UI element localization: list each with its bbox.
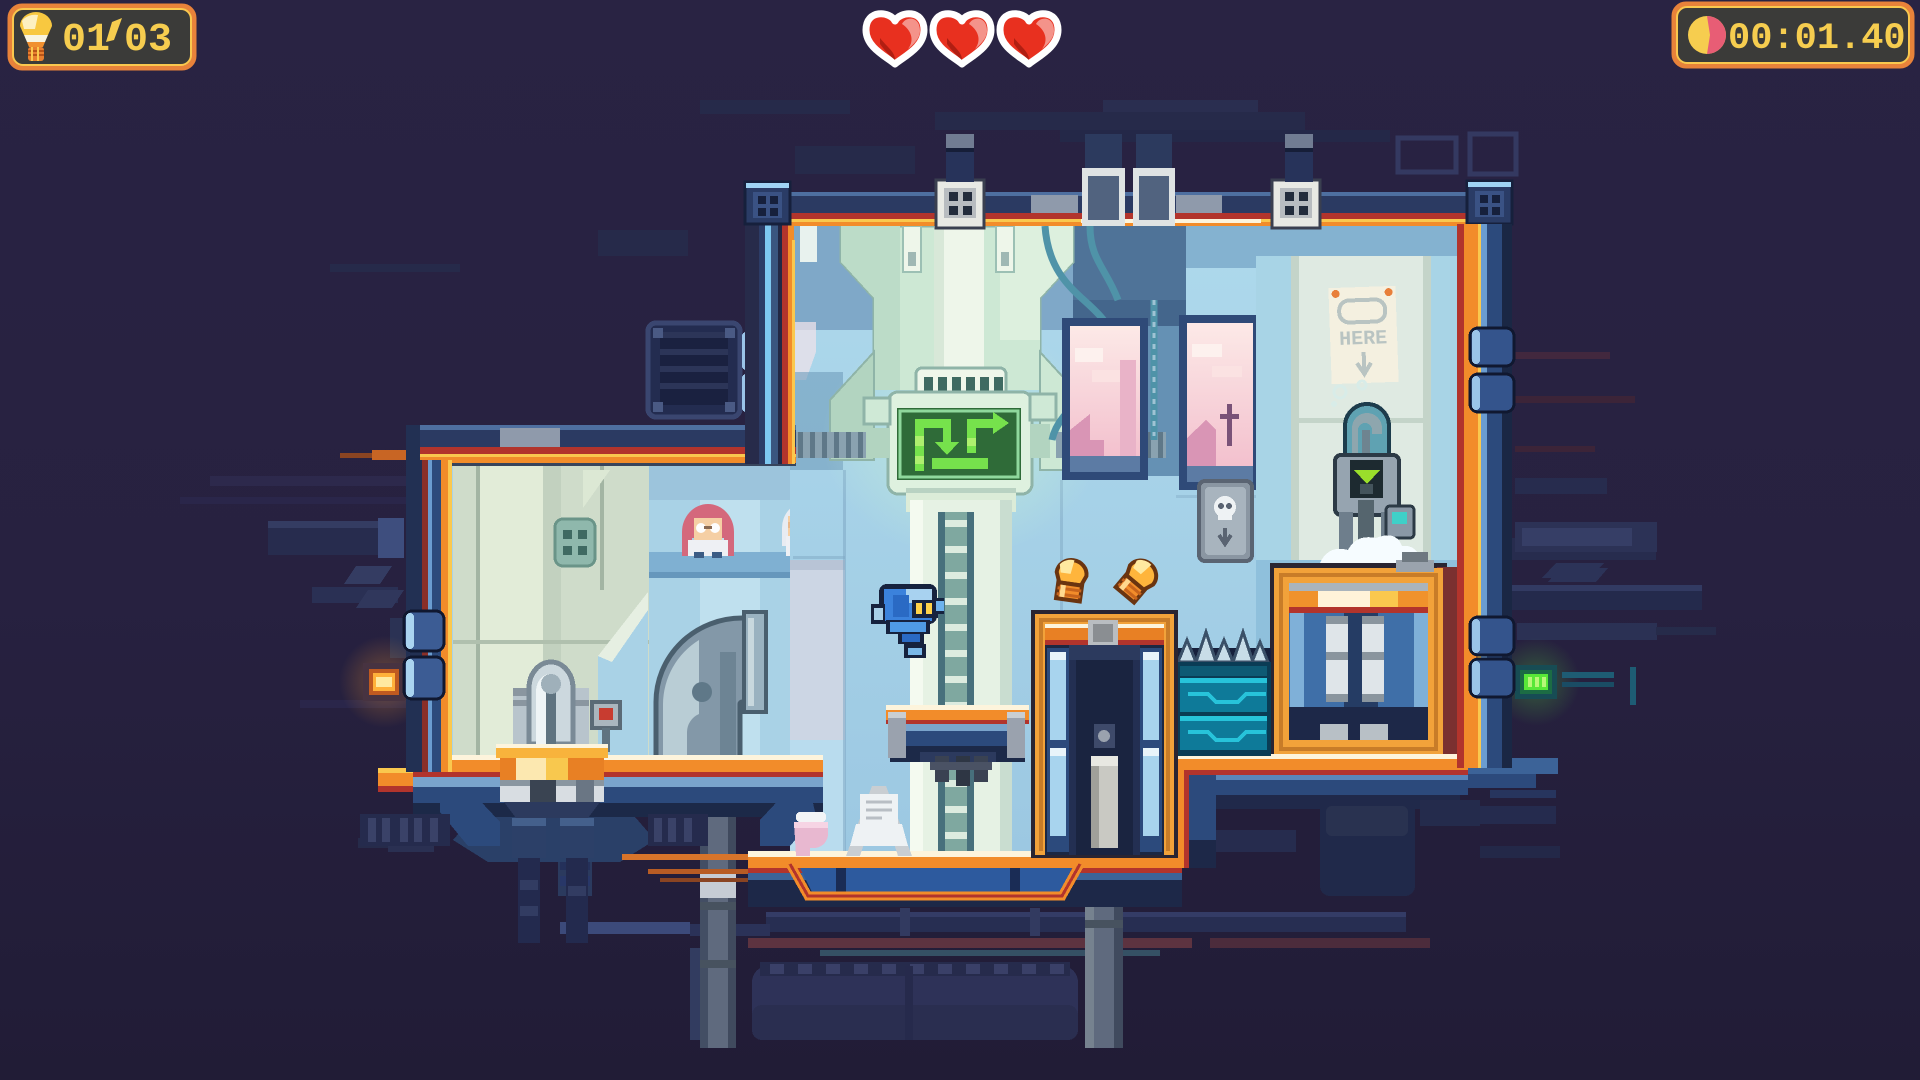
svg-text:00:01.40: 00:01.40 — [1728, 18, 1906, 60]
svg-text:03: 03 — [124, 18, 172, 63]
svg-text:HERE: HERE — [1339, 327, 1388, 352]
svg-text:01: 01 — [62, 18, 110, 63]
